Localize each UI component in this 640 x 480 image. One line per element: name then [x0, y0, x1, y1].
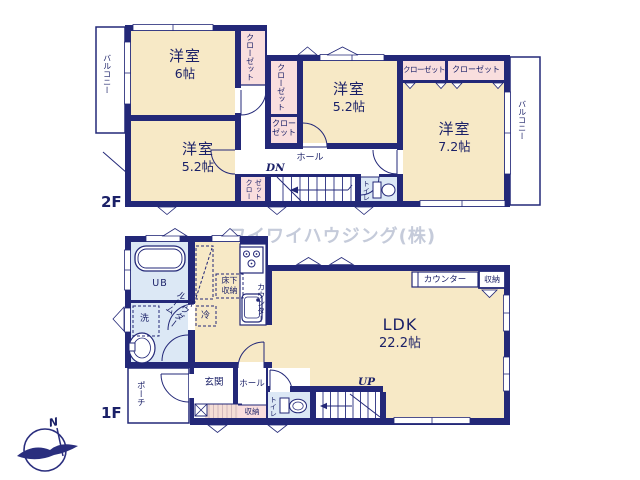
room-bed52-mid-name: 洋室 — [302, 80, 396, 98]
compass-icon — [17, 428, 78, 471]
room-ldk-name: LDK — [330, 315, 470, 334]
floor1-label: 1F — [101, 404, 122, 422]
fridge-label: 冷 — [201, 311, 210, 322]
porch-label: ポーチ — [135, 381, 145, 419]
toilet1-fixture — [280, 398, 307, 413]
room-bed52-mid-size: 5.2帖 — [302, 99, 396, 114]
unit-bath-label: UB — [144, 278, 176, 289]
room-bed6-size: 6帖 — [135, 66, 235, 81]
balcony-left-label: バルコニー — [102, 54, 112, 108]
room-ldk-size: 22.2帖 — [330, 336, 470, 352]
washer-label: 洗 — [140, 314, 149, 325]
room-bed52-left-name: 洋室 — [148, 140, 248, 158]
room-bed72-name: 洋室 — [405, 120, 504, 138]
ldk-storage-label: 収納 — [479, 275, 505, 285]
stove-icon — [240, 247, 263, 273]
stairs1-right-wall — [380, 392, 386, 418]
toilet1-label: トイレ — [269, 396, 277, 416]
closet-c-label: クロー ゼット — [271, 119, 297, 137]
underfloor-storage-label: 床下 収納 — [216, 276, 243, 296]
closet-ef-front — [403, 80, 504, 83]
kitchen-floor — [195, 242, 240, 362]
room-bed72-size: 7.2帖 — [405, 139, 504, 154]
hall-storage-label: 収納 — [239, 407, 265, 416]
vanity-icon — [129, 333, 155, 363]
shoe-box-icon — [195, 404, 207, 416]
stairs-up-label: UP — [358, 376, 375, 389]
closet-d-label: クロー ゼット — [244, 179, 262, 201]
entry-step-strip — [205, 404, 242, 418]
ldk-counter-label: カウンター — [412, 275, 478, 285]
room-bed6-name: 洋室 — [135, 47, 235, 65]
closet-a-label: クローゼット — [245, 33, 255, 83]
closet-f-label: クローゼット — [448, 65, 504, 75]
entrance-label: 玄関 — [198, 377, 230, 388]
hall1-label: ホール — [237, 379, 267, 389]
closet-e-label: クローゼット — [403, 65, 445, 74]
balcony-right-label: バルコニー — [517, 100, 527, 154]
kitchen-counter-label: カウンター — [256, 283, 266, 325]
floor2-label: 2F — [101, 193, 122, 211]
room-bed52-left-size: 5.2帖 — [148, 159, 248, 174]
stairs-down-label: DN — [266, 162, 285, 175]
stairs1-left-wall — [310, 392, 316, 418]
floorplan-page: ワイワイハウジング(株) — [0, 0, 640, 480]
closet-b-label: クローゼット — [276, 63, 286, 113]
toilet2-label: トイレ — [362, 180, 370, 200]
balcony-diagonal-mark — [103, 152, 127, 173]
floorplan-canvas — [0, 0, 640, 480]
bathtub-icon — [135, 246, 185, 271]
hall2-label: ホール — [288, 153, 332, 164]
